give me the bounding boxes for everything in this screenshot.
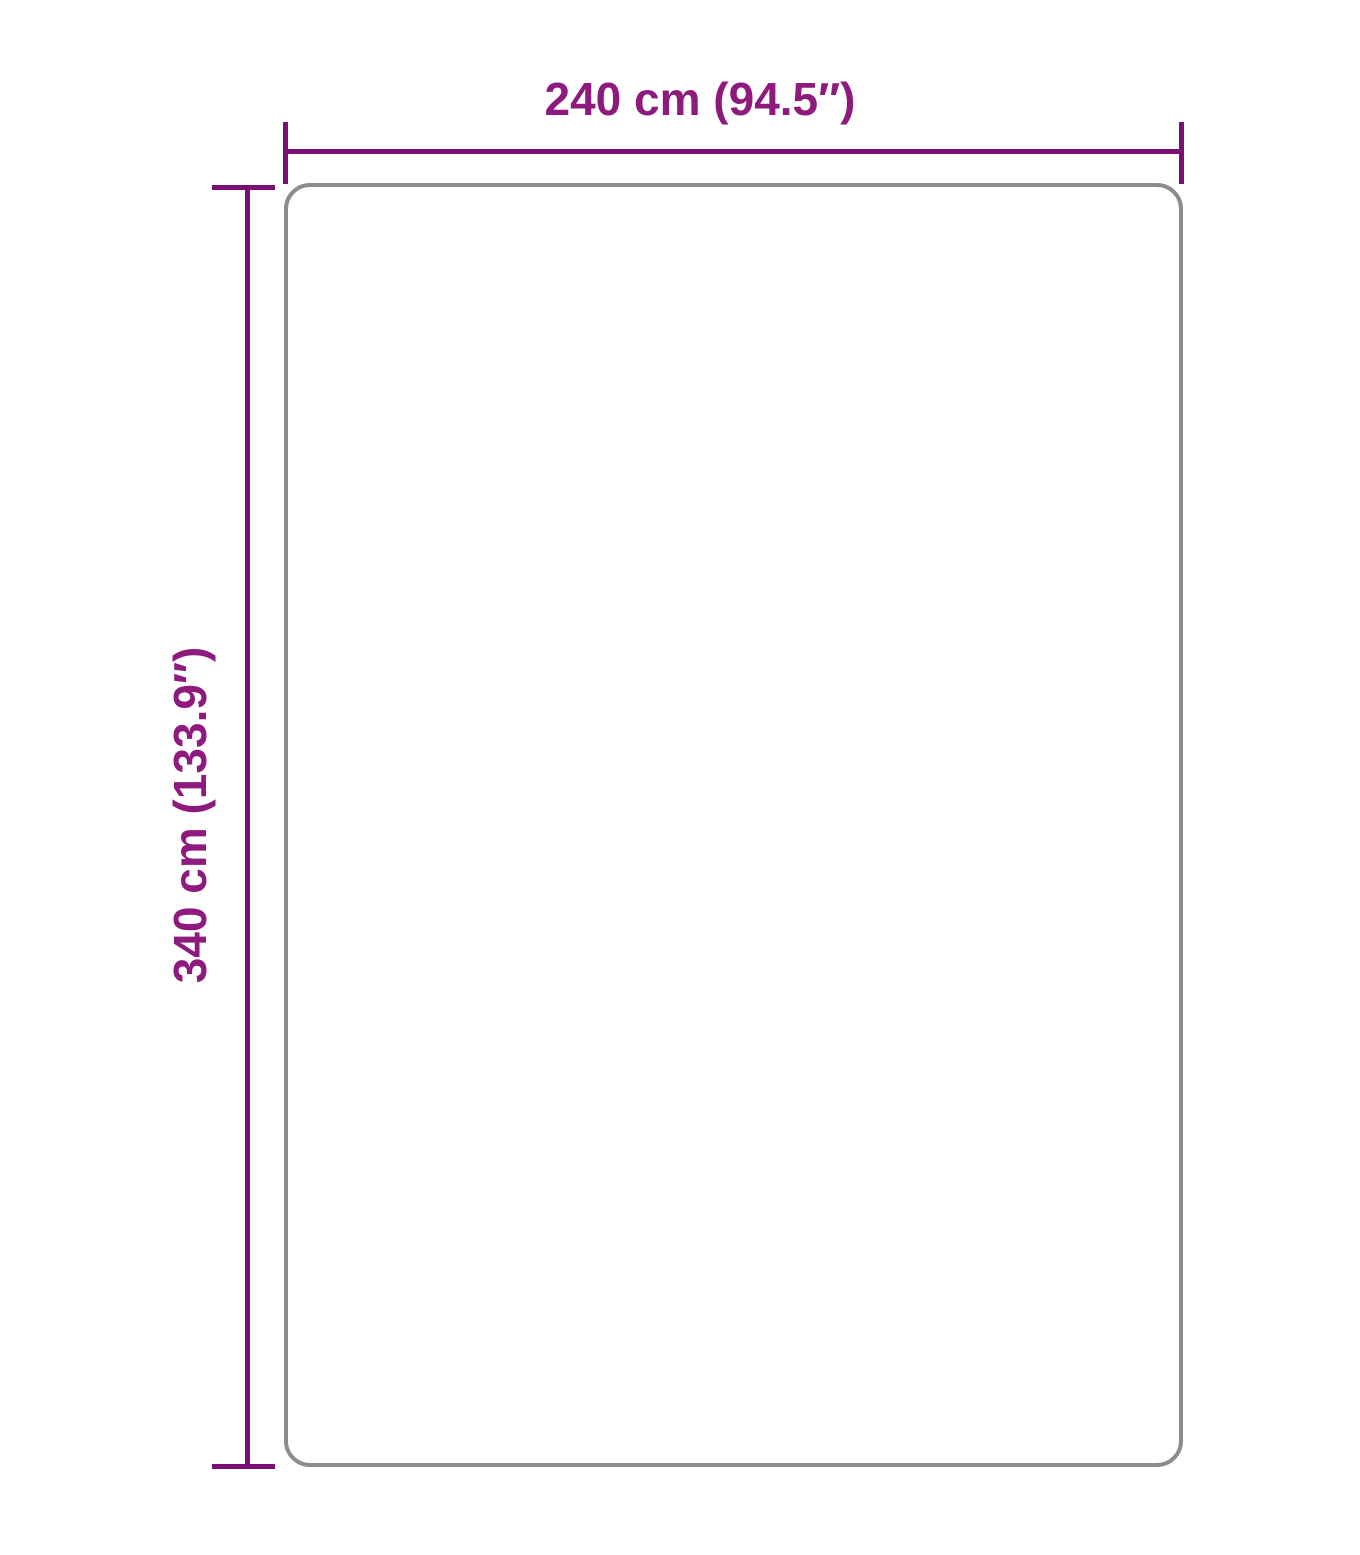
width-dimension-label: 240 cm (94.5″) [545,76,856,122]
dimension-diagram: 240 cm (94.5″) 340 cm (133.9″) [0,0,1360,1555]
width-dimension-line [285,149,1182,154]
height-dimension-line [245,185,250,1469]
height-dimension-label: 340 cm (133.9″) [167,647,213,984]
height-dimension-tick-top [212,185,275,190]
width-dimension-tick-left [283,122,288,184]
rug-outline [284,183,1183,1467]
height-dimension-tick-bottom [212,1464,275,1469]
width-dimension-tick-right [1179,122,1184,184]
